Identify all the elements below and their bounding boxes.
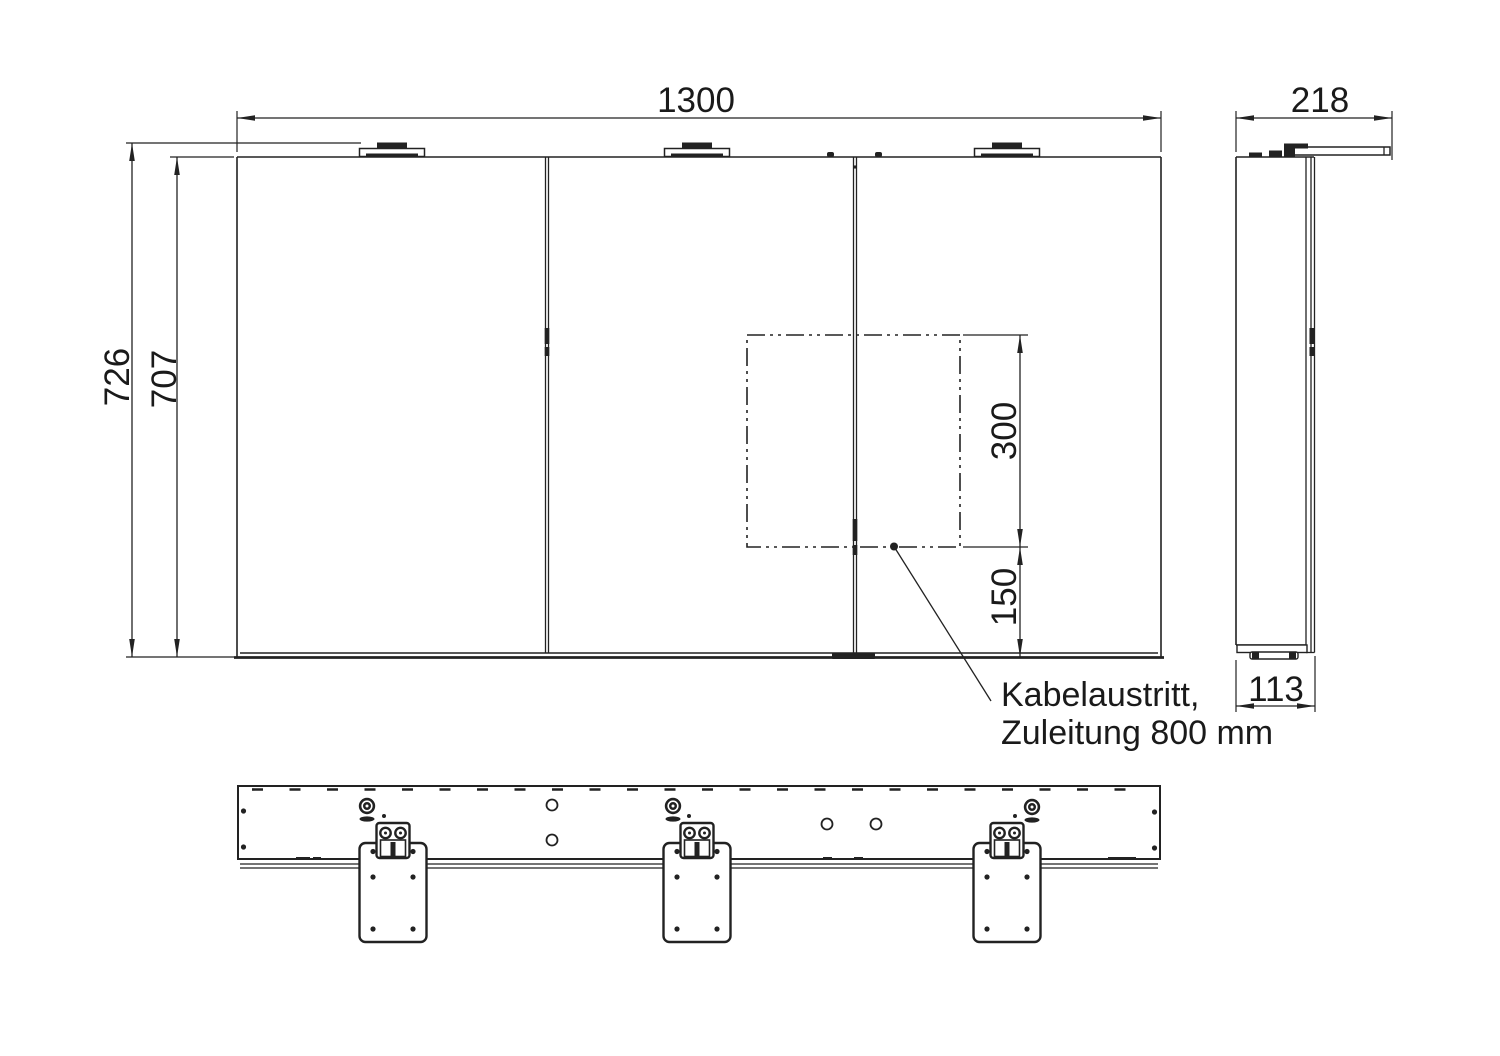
pin-dot (687, 814, 691, 818)
under-cabinet-light (832, 653, 875, 659)
door-bumper (875, 152, 882, 157)
dim-label-depth-overall: 218 (1291, 81, 1349, 120)
dim-label-front-width: 1300 (657, 81, 735, 120)
screw-profile (1269, 151, 1282, 158)
dim-label-cable-zone-offset: 150 (985, 568, 1024, 626)
edge-screw (1152, 845, 1157, 850)
hinge-mark (1310, 347, 1316, 356)
mirror-cabinet-drawing: 1300 726 707 300 150 Kabelaustritt, Zule… (0, 0, 1500, 1056)
dim-label-overall-height: 726 (98, 348, 137, 406)
drawing-background (0, 0, 1500, 1056)
door-bumper (827, 152, 834, 157)
leader-label-line2: Zuleitung 800 mm (1001, 714, 1273, 752)
edge-mark (313, 857, 321, 860)
hinge-mark (545, 328, 550, 344)
edge-screw (1152, 809, 1157, 814)
split-dot (853, 165, 856, 168)
edge-mark (1108, 857, 1136, 860)
dim-label-body-height: 707 (145, 350, 184, 408)
edge-mark (823, 857, 832, 860)
edge-mark (296, 857, 310, 860)
edge-screw (241, 844, 246, 849)
hinge-mark (853, 519, 858, 541)
dim-label-cable-zone-height: 300 (985, 402, 1024, 460)
pin-dot (382, 814, 386, 818)
top-view (238, 786, 1160, 942)
dim-label-depth-body: 113 (1248, 670, 1304, 709)
technical-drawing-canvas: 1300 726 707 300 150 Kabelaustritt, Zule… (0, 0, 1500, 1056)
hinge-mark (545, 347, 550, 356)
leader-label-line1: Kabelaustritt, (1001, 676, 1199, 714)
hinge-mark (1310, 328, 1316, 344)
edge-mark (854, 857, 863, 860)
screw-profile (1249, 153, 1262, 158)
edge-screw (241, 808, 246, 813)
pin-dot (1013, 814, 1017, 818)
